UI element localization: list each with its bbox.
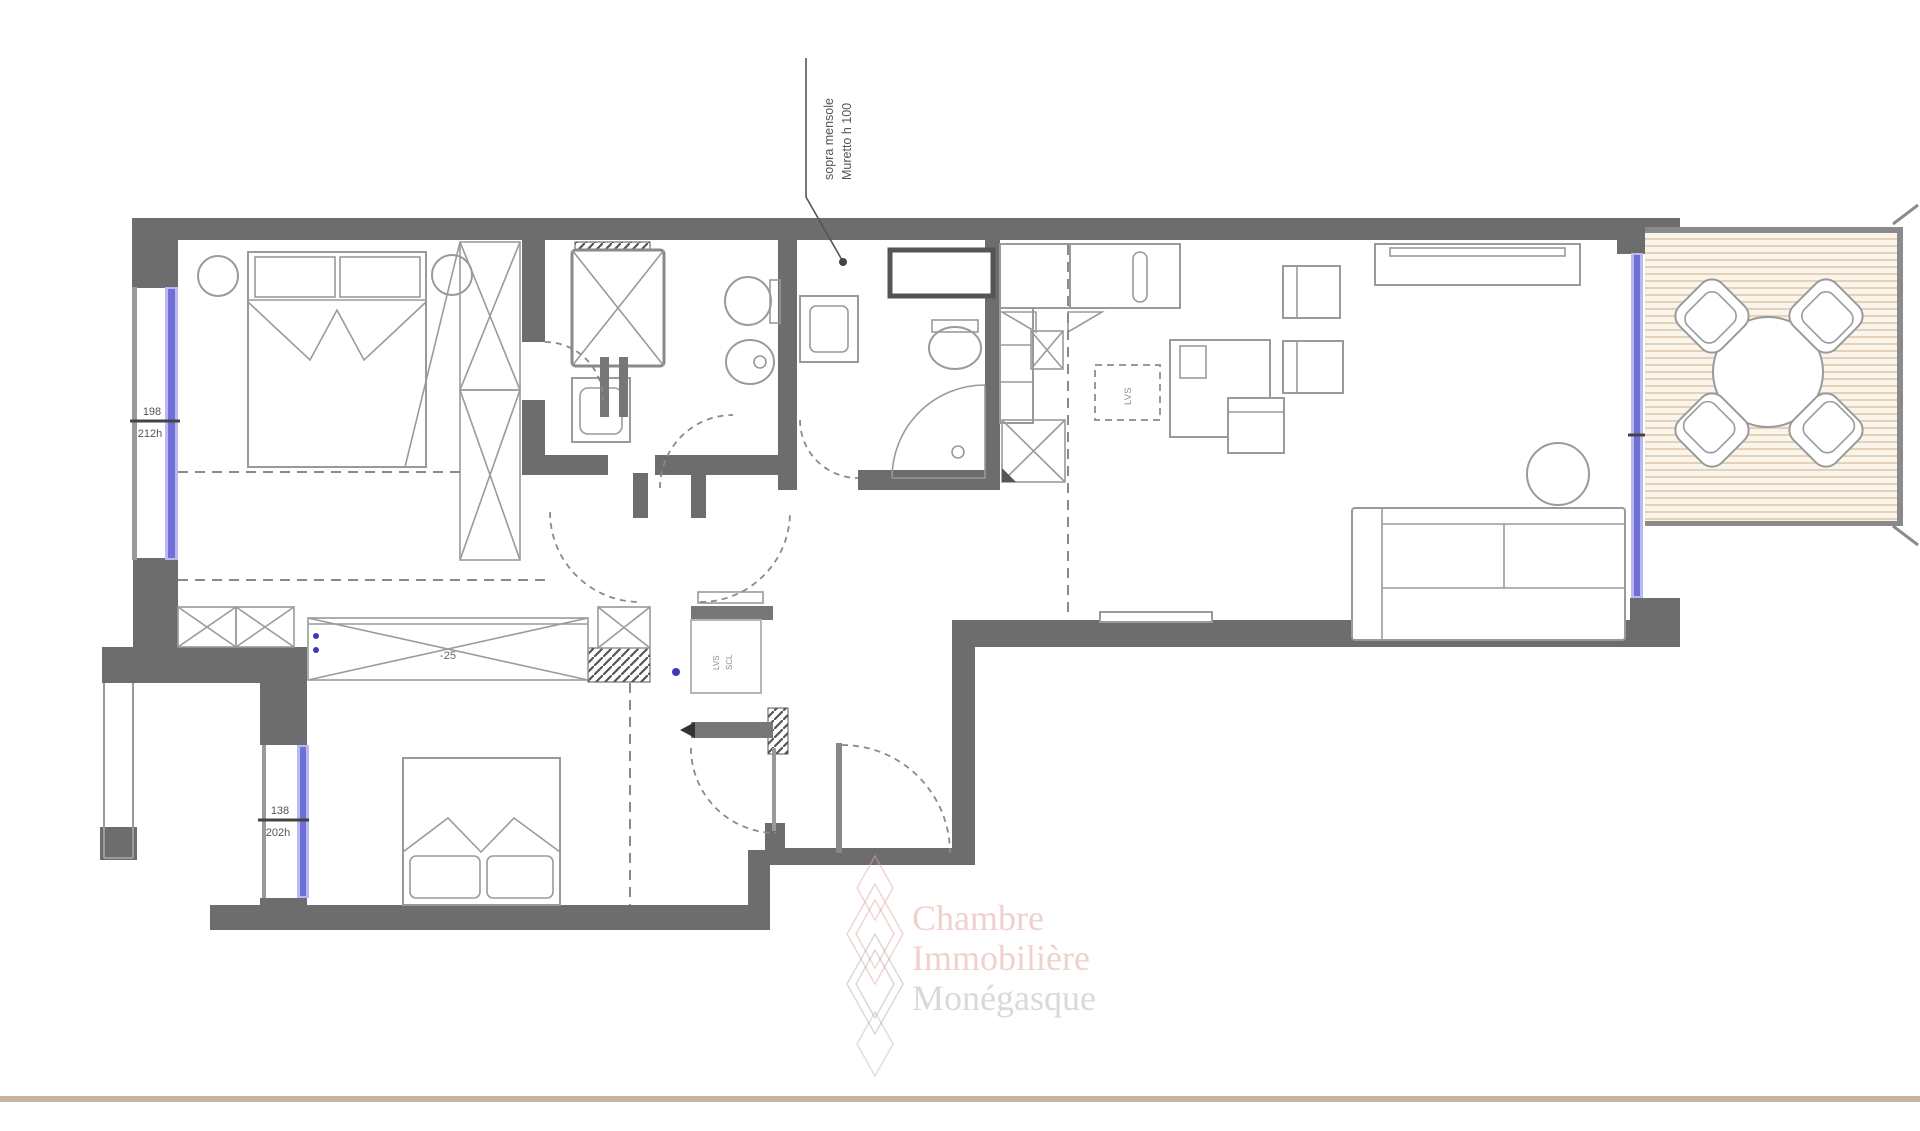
page-baseline	[0, 1096, 1920, 1102]
bedroom1-window-width: 198	[143, 406, 161, 418]
bedroom1-bed	[248, 252, 426, 467]
bedroom2-window-width: 138	[271, 805, 289, 817]
bedroom2-door	[680, 722, 776, 833]
floor-plan-drawing: 198 212h 138 202h 320 212h	[0, 0, 1920, 1131]
bedroom1-window: 198 212h	[130, 287, 180, 560]
radiator	[1100, 612, 1212, 622]
bedroom2-window: 138 202h	[258, 745, 309, 898]
dining-area	[1170, 266, 1343, 453]
wardrobe-level-label: -25	[440, 650, 456, 662]
floor-plan-page: 198 212h 138 202h 320 212h	[0, 0, 1920, 1131]
sofa	[1352, 508, 1625, 640]
bedroom2-bed	[403, 758, 560, 905]
bedroom2	[403, 683, 776, 905]
bedroom1-lamp-left	[198, 256, 238, 296]
entry-door-arc	[842, 745, 950, 853]
dining-chair-3	[1228, 398, 1284, 453]
laundry-label-2: SCL	[725, 654, 734, 670]
bathroom2-corner-shower	[892, 385, 985, 478]
side-table	[1527, 443, 1589, 505]
kitchen: LVS	[1000, 244, 1180, 618]
bathroom1	[545, 250, 780, 442]
dishwasher-box: LVS	[1095, 365, 1160, 420]
watermark-logo	[847, 856, 903, 1076]
bathroom2-toilet	[929, 327, 981, 369]
entry-door-leaf	[836, 743, 842, 853]
bathroom2-door-arc	[800, 420, 858, 478]
sideboard	[1375, 244, 1580, 285]
dining-chair-1	[1283, 266, 1340, 318]
bedroom2-window-height: 202h	[266, 827, 290, 839]
muretto-text-line1: Muretto h 100	[840, 103, 854, 180]
laundry-label-1: LVS	[712, 655, 721, 670]
watermark: Chambre Immobilière Monégasque	[847, 856, 1096, 1076]
muretto-text-line2: sopra mensole	[822, 98, 836, 180]
watermark-line3: Monégasque	[912, 978, 1096, 1018]
hall-wardrobe: -25	[308, 618, 588, 680]
bathroom1-toilet	[725, 277, 771, 325]
entry	[836, 743, 950, 853]
dining-chair-2	[1283, 341, 1343, 393]
bedroom1	[178, 242, 545, 580]
kitchen-oven-unit	[1070, 244, 1180, 308]
bathroom2-niche	[890, 250, 993, 296]
dishwasher-label: LVS	[1123, 387, 1133, 405]
watermark-line2: Immobilière	[912, 938, 1090, 978]
hall-door-arcs	[550, 415, 790, 602]
bathroom2	[800, 250, 993, 478]
laundry-closet: LVS SCL	[672, 592, 773, 693]
terrace	[1645, 205, 1918, 545]
bedroom1-window-height: 212h	[138, 428, 162, 440]
watermark-line1: Chambre	[912, 898, 1044, 938]
